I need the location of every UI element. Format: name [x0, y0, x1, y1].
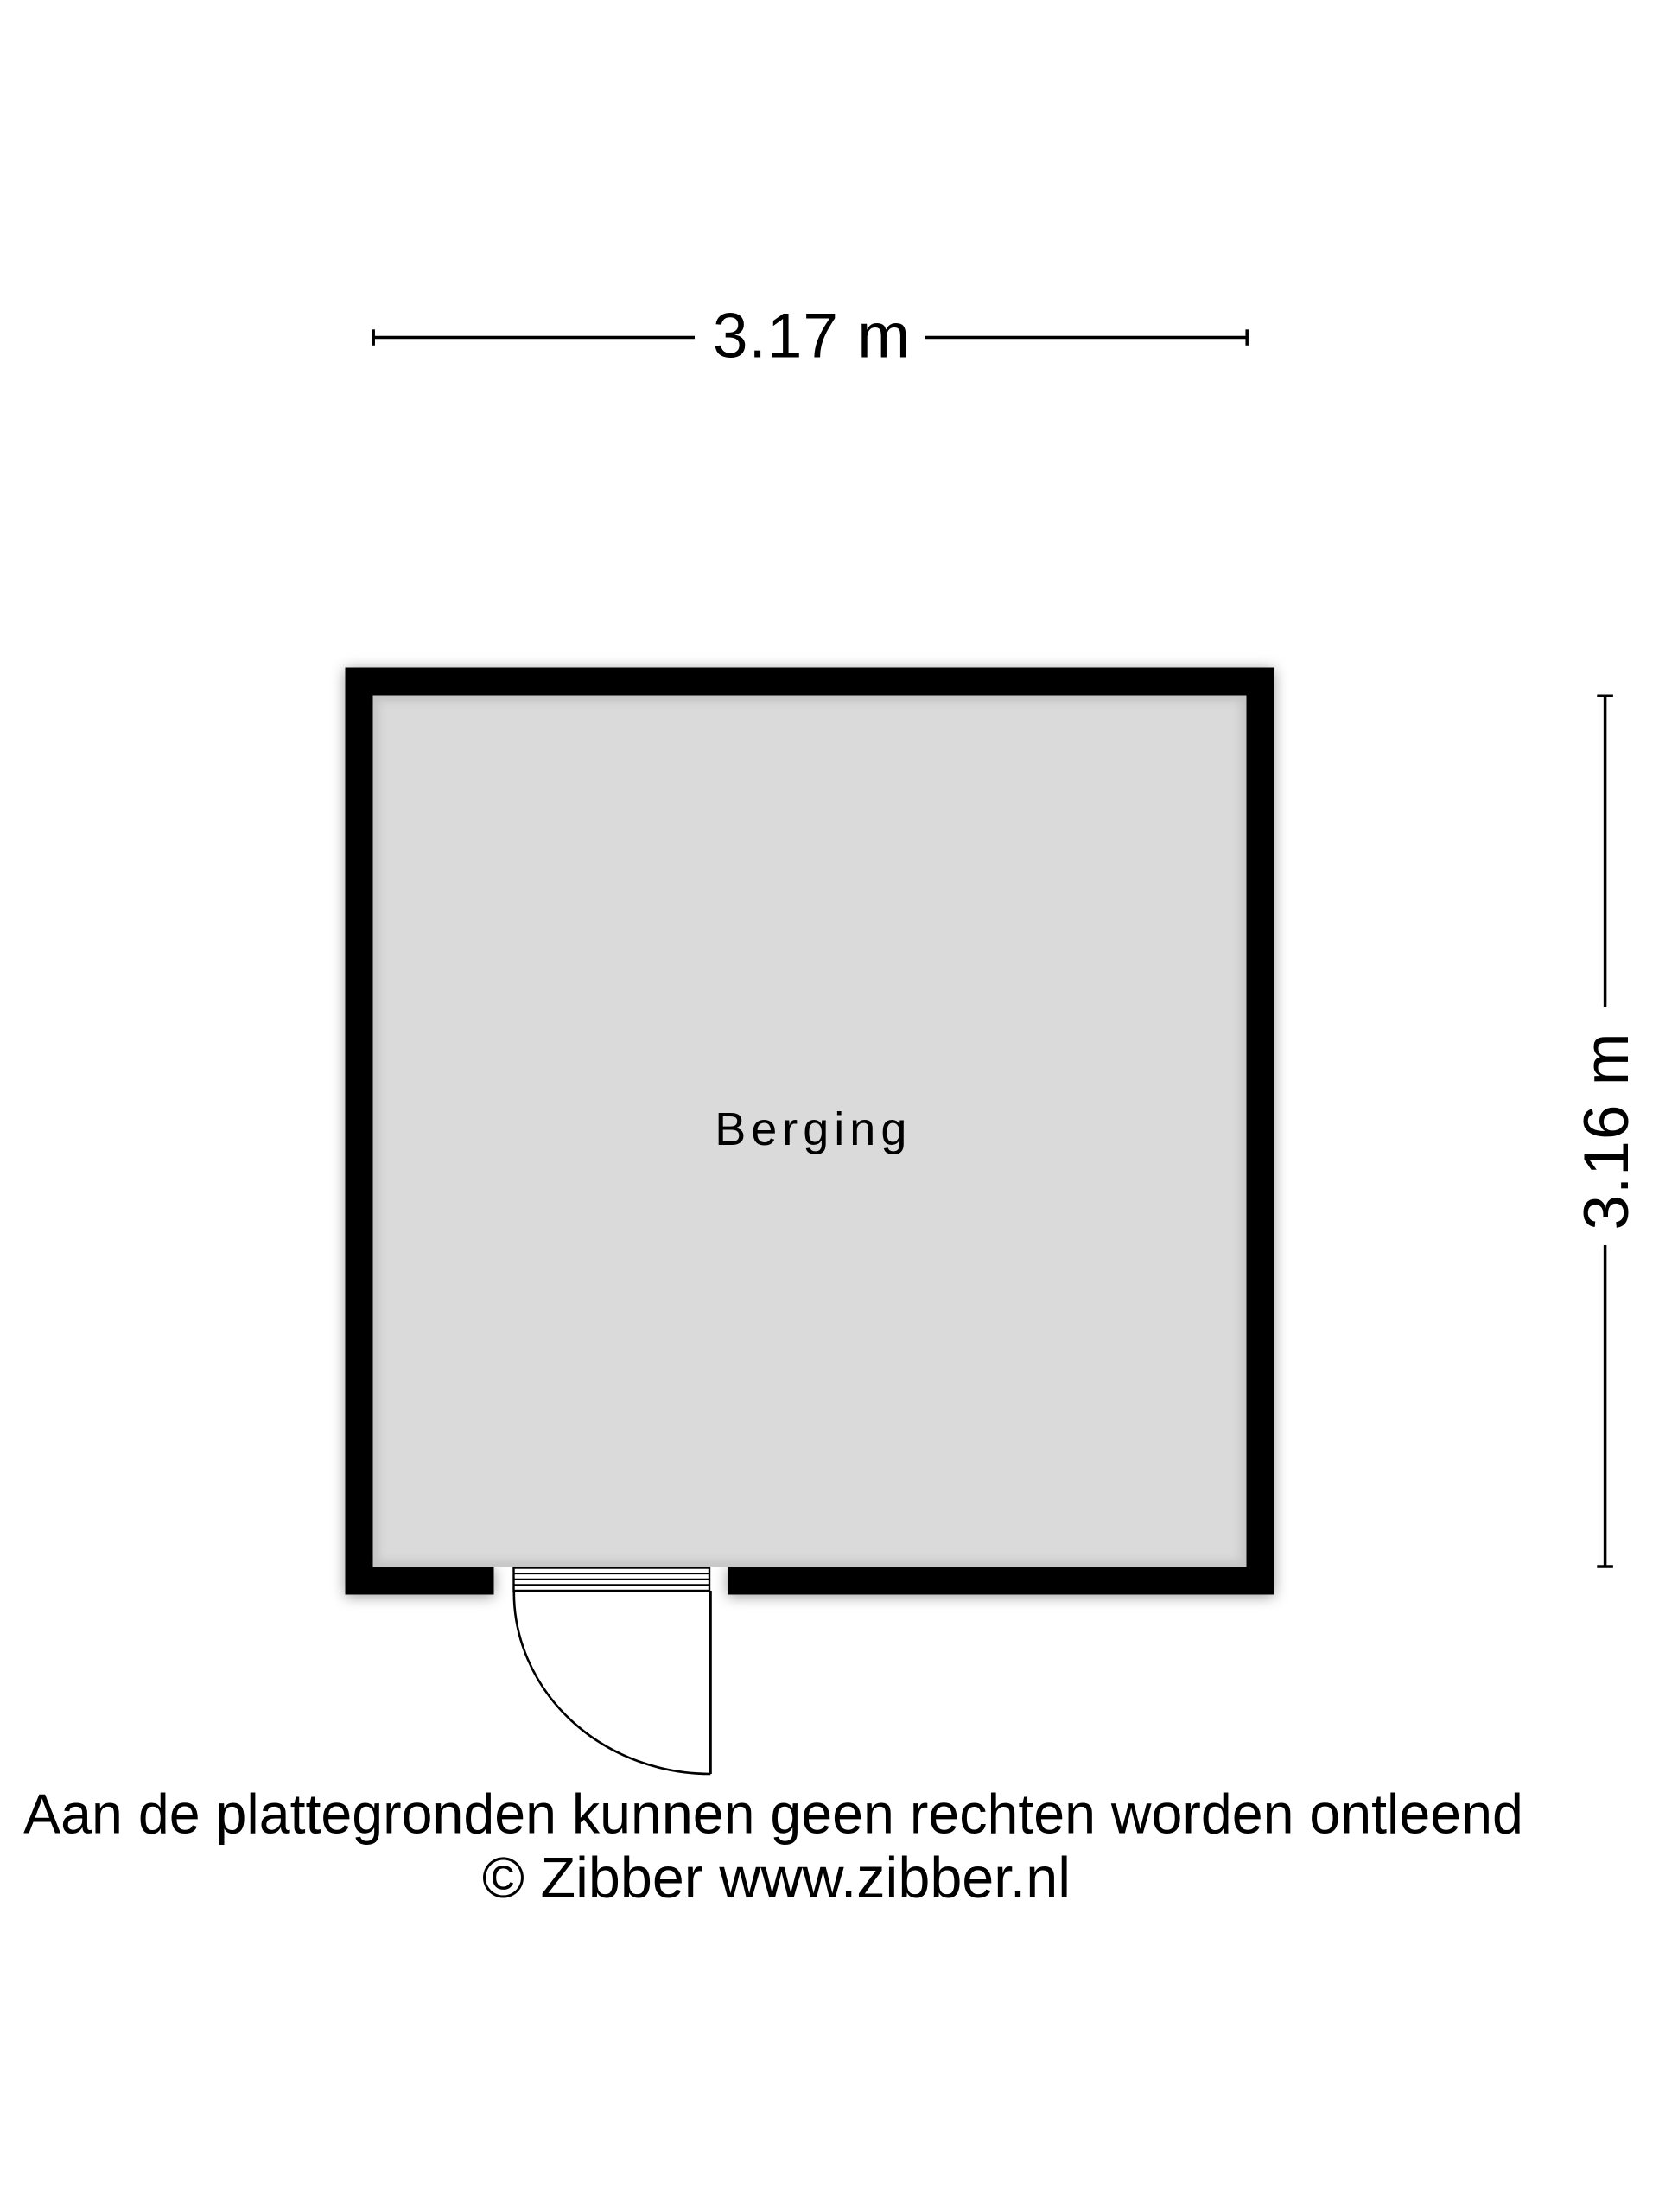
svg-text:Berging: Berging — [715, 1103, 912, 1155]
svg-text:Aan de plattegronden kunnen ge: Aan de plattegronden kunnen geen rechten… — [23, 1783, 1523, 1846]
svg-text:© Zibber www.zibber.nl: © Zibber www.zibber.nl — [482, 1847, 1071, 1910]
svg-text:3.16 m: 3.16 m — [1572, 1032, 1642, 1230]
svg-text:3.17 m: 3.17 m — [713, 301, 911, 371]
